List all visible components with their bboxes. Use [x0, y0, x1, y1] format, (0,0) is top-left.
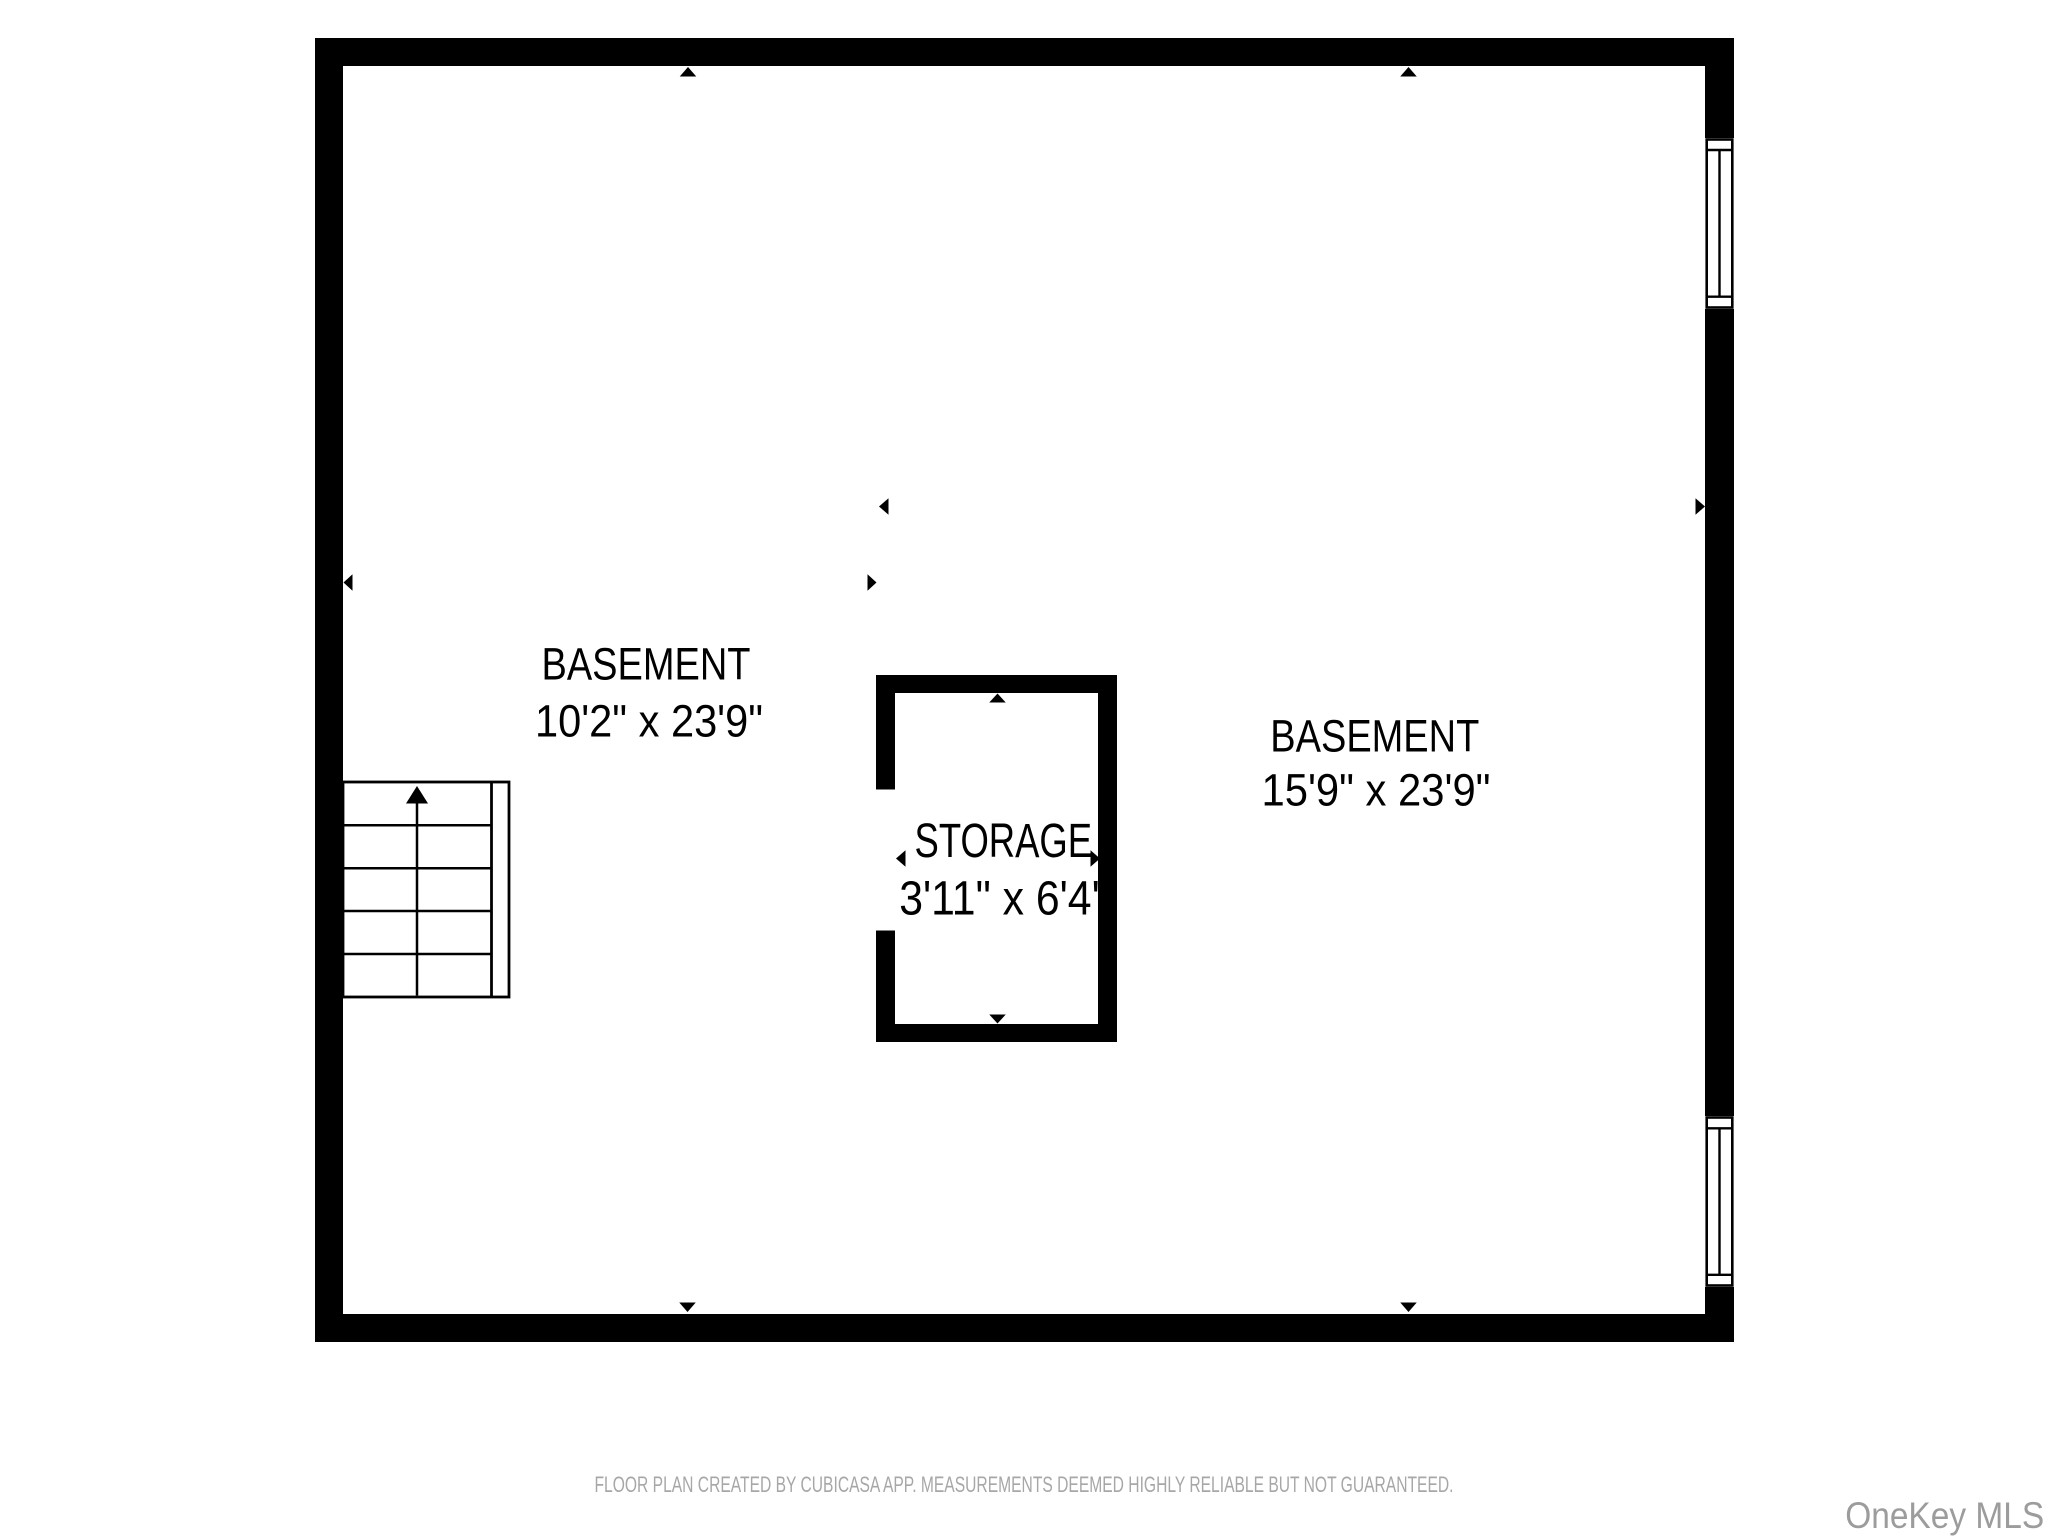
svg-text:STORAGE: STORAGE: [915, 815, 1093, 868]
svg-text:FLOOR PLAN CREATED BY CUBICASA: FLOOR PLAN CREATED BY CUBICASA APP. MEAS…: [595, 1472, 1454, 1497]
svg-text:BASEMENT: BASEMENT: [542, 639, 751, 690]
svg-text:BASEMENT: BASEMENT: [1270, 711, 1479, 762]
svg-text:OneKey MLS: OneKey MLS: [1845, 1494, 2044, 1536]
svg-text:10'2" x 23'9": 10'2" x 23'9": [535, 695, 763, 746]
svg-text:15'9" x 23'9": 15'9" x 23'9": [1262, 765, 1491, 816]
svg-text:3'11" x 6'4': 3'11" x 6'4': [899, 872, 1100, 925]
